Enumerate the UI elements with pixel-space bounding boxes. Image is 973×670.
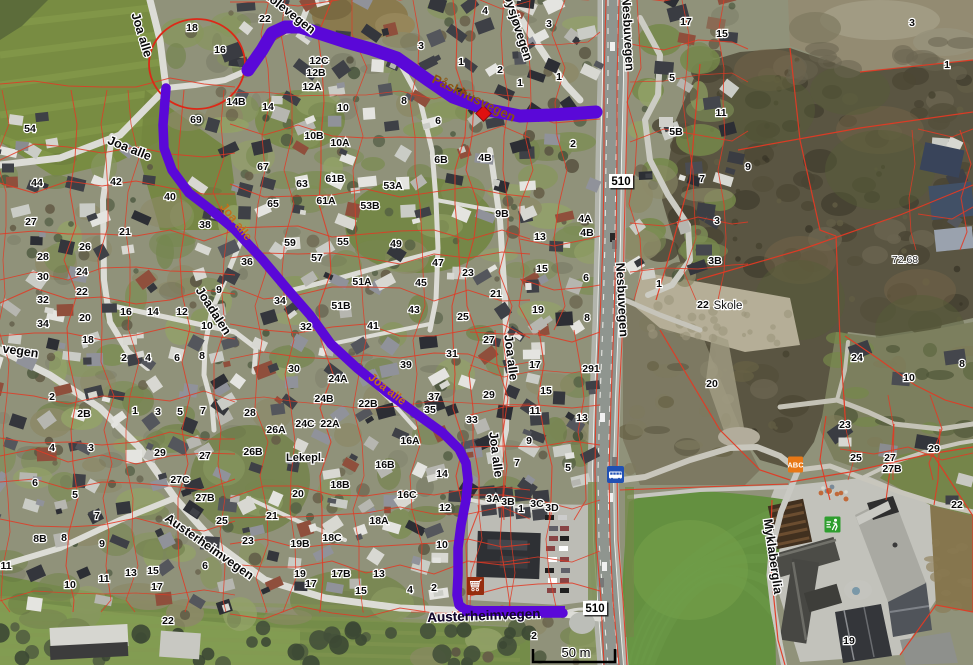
svg-text:9B: 9B (495, 208, 509, 220)
svg-text:8B: 8B (33, 533, 47, 545)
svg-text:26: 26 (79, 241, 91, 253)
svg-text:27: 27 (199, 450, 211, 462)
svg-text:6: 6 (202, 560, 208, 572)
svg-text:5: 5 (177, 406, 183, 418)
svg-text:10: 10 (201, 320, 213, 332)
svg-text:23: 23 (462, 267, 474, 279)
svg-text:34: 34 (37, 318, 49, 330)
svg-text:27: 27 (25, 216, 37, 228)
svg-text:30: 30 (37, 271, 49, 283)
svg-text:8: 8 (61, 532, 67, 544)
svg-text:8: 8 (584, 312, 590, 324)
svg-text:18C: 18C (322, 532, 342, 544)
svg-text:5B: 5B (669, 126, 683, 138)
svg-text:7: 7 (94, 510, 100, 522)
svg-text:27: 27 (483, 334, 495, 346)
svg-text:21: 21 (490, 288, 502, 300)
svg-text:21: 21 (266, 510, 278, 522)
svg-text:2: 2 (570, 138, 576, 150)
svg-text:1: 1 (458, 56, 464, 68)
svg-text:3: 3 (714, 215, 720, 227)
svg-text:22: 22 (162, 615, 174, 627)
svg-text:53A: 53A (383, 180, 403, 192)
svg-text:34: 34 (274, 295, 286, 307)
svg-text:16: 16 (120, 306, 132, 318)
svg-text:54: 54 (24, 123, 36, 135)
svg-text:1: 1 (517, 77, 523, 89)
svg-text:1: 1 (656, 278, 662, 290)
svg-text:24A: 24A (328, 373, 348, 385)
svg-text:37: 37 (428, 391, 440, 403)
svg-text:59: 59 (284, 237, 296, 249)
svg-text:50 m: 50 m (562, 645, 591, 660)
svg-text:40: 40 (164, 191, 176, 203)
svg-text:6: 6 (174, 352, 180, 364)
svg-text:2: 2 (49, 391, 55, 403)
svg-text:30: 30 (288, 363, 300, 375)
svg-text:32: 32 (37, 294, 49, 306)
svg-text:6: 6 (32, 477, 38, 489)
svg-text:9: 9 (526, 435, 532, 447)
svg-text:17: 17 (305, 578, 317, 590)
svg-text:15: 15 (355, 585, 367, 597)
svg-text:22: 22 (951, 499, 963, 511)
svg-text:36: 36 (241, 256, 253, 268)
svg-text:28: 28 (244, 407, 256, 419)
svg-text:14: 14 (262, 101, 274, 113)
svg-text:20: 20 (79, 312, 91, 324)
svg-text:15: 15 (147, 565, 159, 577)
svg-text:18A: 18A (369, 515, 389, 527)
svg-text:20: 20 (706, 378, 718, 390)
svg-text:ABC: ABC (787, 461, 804, 470)
svg-text:23: 23 (839, 419, 851, 431)
svg-text:4A: 4A (578, 213, 592, 225)
svg-text:29: 29 (483, 389, 495, 401)
svg-text:13: 13 (576, 412, 588, 424)
svg-text:57: 57 (311, 252, 323, 264)
svg-text:19: 19 (843, 635, 855, 647)
svg-text:11: 11 (0, 560, 11, 572)
svg-text:16B: 16B (375, 459, 395, 471)
svg-text:4: 4 (49, 442, 55, 454)
svg-text:18B: 18B (330, 479, 350, 491)
svg-text:4: 4 (407, 584, 413, 596)
svg-text:26A: 26A (266, 424, 286, 436)
svg-text:51B: 51B (331, 300, 351, 312)
svg-text:23: 23 (242, 535, 254, 547)
svg-text:22: 22 (76, 286, 88, 298)
svg-text:43: 43 (408, 304, 420, 316)
svg-text:13: 13 (373, 568, 385, 580)
svg-text:3A: 3A (486, 493, 500, 505)
svg-text:7: 7 (200, 405, 206, 417)
svg-text:3: 3 (155, 406, 161, 418)
svg-text:61A: 61A (316, 195, 336, 207)
svg-text:10: 10 (64, 579, 76, 591)
svg-text:26B: 26B (243, 446, 263, 458)
svg-text:4: 4 (482, 5, 488, 17)
svg-text:21: 21 (119, 226, 131, 238)
svg-text:12: 12 (176, 306, 188, 318)
svg-text:15: 15 (716, 28, 728, 40)
svg-text:291: 291 (582, 363, 600, 375)
svg-text:12A: 12A (302, 81, 322, 93)
svg-text:22A: 22A (320, 418, 340, 430)
svg-text:16A: 16A (400, 435, 420, 447)
svg-text:29: 29 (928, 443, 940, 455)
svg-text:17B: 17B (331, 568, 351, 580)
svg-text:49: 49 (390, 238, 402, 250)
svg-text:51A: 51A (352, 276, 372, 288)
svg-text:11: 11 (529, 405, 540, 417)
svg-text:3B: 3B (501, 496, 515, 508)
svg-text:12B: 12B (306, 67, 326, 79)
svg-text:29: 29 (154, 447, 166, 459)
svg-text:3D: 3D (545, 502, 559, 514)
svg-text:41: 41 (367, 320, 379, 332)
svg-text:4B: 4B (580, 227, 594, 239)
svg-text:18: 18 (82, 334, 94, 346)
svg-text:11: 11 (715, 107, 726, 119)
svg-text:10B: 10B (304, 130, 324, 142)
svg-text:45: 45 (415, 277, 427, 289)
svg-text:24: 24 (851, 352, 863, 364)
svg-text:44: 44 (31, 177, 43, 189)
svg-text:1: 1 (944, 59, 950, 71)
svg-text:20: 20 (292, 488, 304, 500)
svg-text:10: 10 (903, 372, 915, 384)
svg-text:17: 17 (151, 581, 163, 593)
svg-text:19B: 19B (290, 538, 310, 550)
svg-text:6: 6 (583, 272, 589, 284)
svg-text:5: 5 (669, 72, 675, 84)
svg-text:10: 10 (337, 102, 349, 114)
svg-text:15: 15 (536, 263, 548, 275)
svg-text:2: 2 (531, 630, 537, 642)
svg-text:3B: 3B (708, 255, 722, 267)
svg-text:24C: 24C (295, 418, 315, 430)
svg-text:12: 12 (439, 502, 451, 514)
svg-text:3: 3 (88, 442, 94, 454)
svg-text:3: 3 (418, 40, 424, 52)
svg-text:35: 35 (424, 404, 436, 416)
svg-text:27B: 27B (882, 463, 902, 475)
svg-text:7: 7 (699, 173, 705, 185)
svg-text:38: 38 (199, 219, 211, 231)
svg-text:69: 69 (190, 114, 202, 126)
svg-text:8: 8 (959, 358, 965, 370)
svg-text:2: 2 (431, 582, 437, 594)
svg-text:5: 5 (72, 489, 78, 501)
svg-text:63: 63 (296, 178, 308, 190)
svg-text:1: 1 (556, 71, 562, 83)
svg-text:27B: 27B (195, 492, 215, 504)
svg-text:42: 42 (110, 176, 122, 188)
svg-text:8: 8 (199, 350, 205, 362)
svg-text:10: 10 (436, 539, 448, 551)
svg-text:28: 28 (37, 251, 49, 263)
svg-text:31: 31 (446, 348, 458, 360)
svg-text:55: 55 (337, 236, 349, 248)
svg-text:22B: 22B (358, 398, 378, 410)
svg-text:3: 3 (546, 18, 552, 30)
svg-text:14B: 14B (226, 96, 246, 108)
svg-text:4B: 4B (478, 152, 492, 164)
svg-text:16: 16 (214, 44, 226, 56)
svg-text:25: 25 (216, 515, 228, 527)
svg-text:22: 22 (259, 13, 271, 25)
svg-text:5: 5 (565, 462, 571, 474)
svg-text:47: 47 (432, 257, 444, 269)
svg-text:17: 17 (529, 359, 541, 371)
svg-text:17: 17 (680, 16, 692, 28)
svg-text:Lekepl.: Lekepl. (286, 452, 324, 464)
svg-text:16C: 16C (397, 489, 417, 501)
svg-text:24: 24 (76, 266, 88, 278)
svg-text:18: 18 (186, 22, 198, 34)
svg-text:13: 13 (534, 231, 546, 243)
svg-text:10A: 10A (330, 137, 350, 149)
svg-text:2: 2 (497, 64, 503, 76)
svg-text:510: 510 (585, 603, 604, 615)
svg-text:22: 22 (697, 299, 709, 311)
svg-text:15: 15 (540, 385, 552, 397)
svg-text:2: 2 (121, 352, 127, 364)
svg-text:25: 25 (457, 311, 469, 323)
svg-text:9: 9 (216, 284, 222, 296)
svg-text:510: 510 (611, 176, 630, 188)
svg-text:67: 67 (257, 161, 269, 173)
svg-text:25: 25 (850, 452, 862, 464)
svg-text:24B: 24B (314, 393, 334, 405)
svg-text:9: 9 (745, 161, 751, 173)
svg-text:32: 32 (300, 321, 312, 333)
svg-text:72.68: 72.68 (892, 254, 918, 266)
svg-text:6: 6 (435, 115, 441, 127)
svg-text:61B: 61B (325, 173, 345, 185)
svg-text:39: 39 (400, 359, 412, 371)
svg-text:13: 13 (125, 567, 137, 579)
svg-text:4: 4 (145, 352, 151, 364)
svg-text:7: 7 (514, 457, 520, 469)
svg-text:2B: 2B (77, 408, 91, 420)
svg-text:65: 65 (267, 198, 279, 210)
svg-text:33: 33 (466, 414, 478, 426)
svg-text:12C: 12C (309, 55, 329, 67)
svg-text:14: 14 (436, 468, 448, 480)
svg-text:3C: 3C (530, 498, 544, 510)
svg-text:9: 9 (99, 538, 105, 550)
svg-text:8: 8 (401, 95, 407, 107)
svg-text:14: 14 (147, 306, 159, 318)
svg-text:27C: 27C (170, 474, 190, 486)
svg-text:53B: 53B (360, 200, 380, 212)
svg-text:1: 1 (518, 503, 524, 515)
svg-text:11: 11 (98, 573, 109, 585)
svg-text:1: 1 (132, 405, 138, 417)
svg-text:Skole: Skole (714, 300, 743, 312)
svg-text:19: 19 (532, 304, 544, 316)
svg-text:6B: 6B (434, 154, 448, 166)
svg-text:3: 3 (909, 17, 915, 29)
